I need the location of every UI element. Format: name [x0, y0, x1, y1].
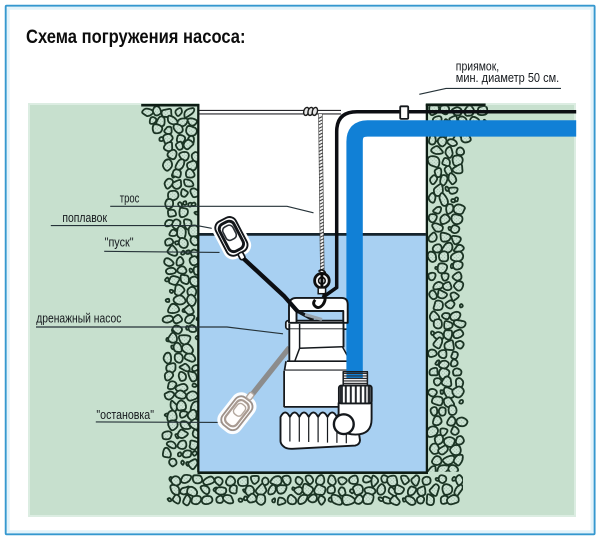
- svg-text:дренажный насос: дренажный насос: [36, 310, 122, 325]
- svg-text:"пуск": "пуск": [105, 234, 134, 249]
- svg-text:Схема погружения насоса:: Схема погружения насоса:: [26, 26, 246, 48]
- svg-text:"остановка": "остановка": [96, 407, 154, 422]
- svg-text:поплавок: поплавок: [62, 210, 107, 225]
- svg-text:мин. диаметр 50 см.: мин. диаметр 50 см.: [456, 70, 559, 85]
- svg-text:трос: трос: [120, 191, 140, 206]
